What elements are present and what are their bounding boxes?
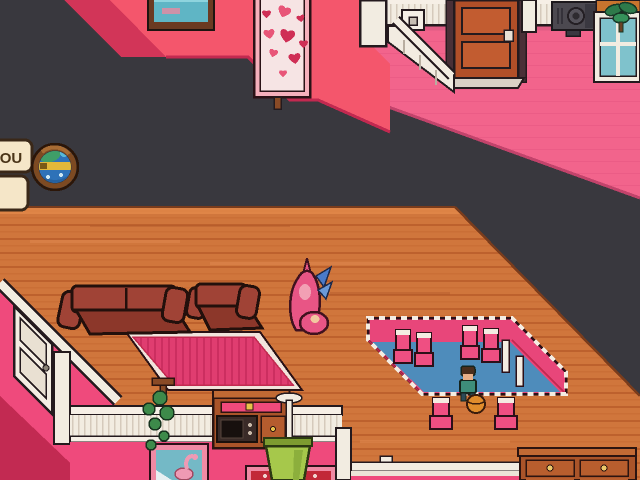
plant-bracket: [152, 378, 174, 385]
game-scene-canvas: YOU: [0, 0, 640, 480]
teal-painting: [148, 0, 214, 30]
white-door-knob[interactable]: [43, 365, 49, 371]
flamingo-painting: [150, 444, 208, 480]
microwave[interactable]: [217, 416, 257, 442]
floor-chair: [430, 398, 452, 429]
wall-hook: [274, 97, 281, 109]
bucket-body: [266, 446, 310, 480]
drawer-dresser: [518, 448, 636, 480]
floor-chair: [495, 398, 517, 429]
hearts-painting: [254, 0, 310, 109]
flamingo-body: [175, 468, 193, 480]
railing-corner-post: [336, 428, 351, 480]
wooden-door[interactable]: [446, 0, 526, 88]
couch-back: [72, 286, 176, 312]
stair-post: [360, 0, 386, 46]
couch-arm-right: [161, 286, 189, 323]
couch: [56, 286, 190, 334]
pit-ladder-post: [502, 340, 509, 372]
hud-you-label: YOU: [0, 150, 22, 167]
wall-post: [54, 352, 70, 444]
drawer-knob[interactable]: [547, 465, 553, 471]
door-handle[interactable]: [504, 30, 513, 41]
pit-chair: [482, 329, 500, 362]
pit-chair: [461, 326, 479, 359]
pit-ladder-post: [516, 356, 523, 386]
wall-corner-post: [522, 0, 536, 32]
pit-chair: [394, 330, 412, 363]
pit-chair: [415, 333, 433, 366]
window-with-palm: [594, 0, 640, 82]
hud-panel-button[interactable]: [0, 176, 28, 210]
drawer-knob[interactable]: [601, 465, 607, 471]
game-screen: YOU: [0, 0, 640, 480]
projector: [552, 2, 600, 36]
